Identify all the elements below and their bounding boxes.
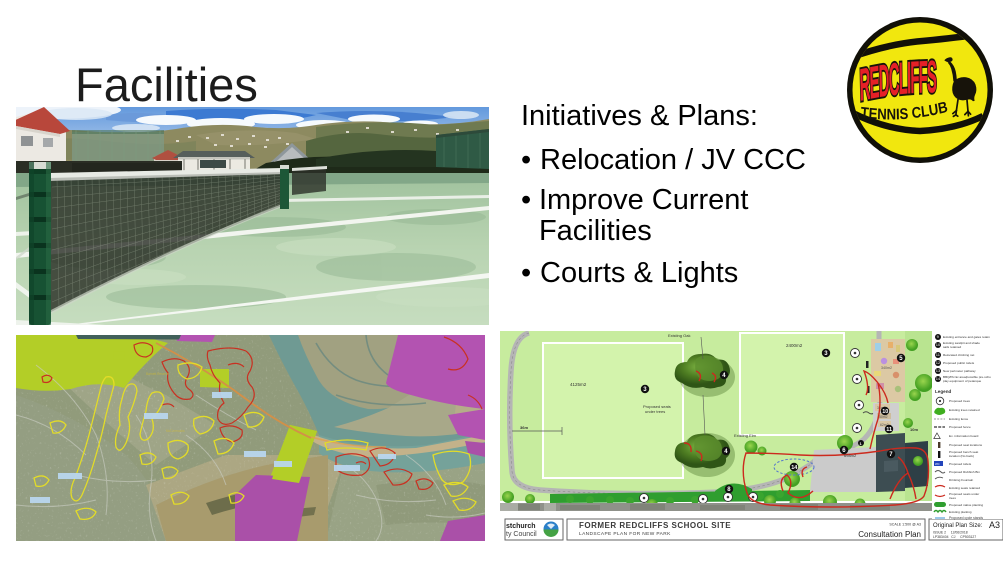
svg-text:REDCLIFFS: REDCLIFFS xyxy=(859,52,937,112)
svg-text:LP383404 CJ CP503127: LP383404 CJ CP503127 xyxy=(933,535,976,539)
svg-text:Ex. information board: Ex. information board xyxy=(949,434,979,438)
svg-text:Proposed trees: Proposed trees xyxy=(949,399,970,403)
svg-text:Existing trees retained: Existing trees retained xyxy=(949,408,980,412)
svg-text:SCALE 1:500 @ A3: SCALE 1:500 @ A3 xyxy=(889,523,921,527)
svg-text:Legend: Legend xyxy=(935,389,952,394)
svg-text:McCormacks: McCormacks xyxy=(166,429,185,433)
svg-text:WC: WC xyxy=(935,462,940,466)
svg-text:LANDSCAPE PLAN FOR NEW PARK: LANDSCAPE PLAN FOR NEW PARK xyxy=(579,531,671,537)
svg-text:Proposed Rubbish Bin: Proposed Rubbish Bin xyxy=(949,470,980,474)
svg-text:Proposed toilets: Proposed toilets xyxy=(949,462,972,466)
svg-text:FORMER REDCLIFFS SCHOOL SITE: FORMER REDCLIFFS SCHOOL SITE xyxy=(579,521,731,530)
svg-text:Proposed cycle stands: Proposed cycle stands xyxy=(949,516,983,520)
svg-text:340m2: 340m2 xyxy=(881,366,892,370)
svg-text:play equipment of petanque: play equipment of petanque xyxy=(943,379,981,383)
svg-text:trees: trees xyxy=(949,496,956,500)
svg-text:14: 14 xyxy=(936,376,941,381)
svg-text:Existing Elm: Existing Elm xyxy=(734,433,757,438)
svg-text:Relocated climbing net: Relocated climbing net xyxy=(943,353,974,357)
svg-text:14: 14 xyxy=(791,465,798,471)
svg-text:Proposed public toilets: Proposed public toilets xyxy=(943,361,975,365)
svg-text:Proposed native planting: Proposed native planting xyxy=(949,503,983,507)
svg-text:Drinking Fountain: Drinking Fountain xyxy=(949,478,974,482)
svg-text:11: 11 xyxy=(886,427,892,433)
svg-text:10: 10 xyxy=(882,409,888,415)
svg-text:36m: 36m xyxy=(520,425,528,430)
svg-text:Proposed seat locations: Proposed seat locations xyxy=(949,443,982,447)
svg-text:ty Council: ty Council xyxy=(506,531,537,538)
svg-text:Existing entrance and gates re: Existing entrance and gates retain xyxy=(943,335,990,339)
svg-text:13: 13 xyxy=(936,368,941,373)
svg-text:Existing seats retained: Existing seats retained xyxy=(949,486,980,490)
svg-text:New perimeter pathway: New perimeter pathway xyxy=(943,369,976,373)
svg-text:A3: A3 xyxy=(989,520,1000,530)
svg-text:Existing fence: Existing fence xyxy=(949,417,969,421)
svg-text:Existing planting: Existing planting xyxy=(949,510,972,514)
svg-text:Original Plan Size:: Original Plan Size: xyxy=(933,523,983,529)
svg-text:698m2: 698m2 xyxy=(844,453,857,458)
svg-text:Consultation Plan: Consultation Plan xyxy=(858,530,921,539)
svg-text:under trees: under trees xyxy=(645,409,665,414)
svg-text:sails retained: sails retained xyxy=(943,345,962,349)
svg-text:Proposed fence: Proposed fence xyxy=(949,425,971,429)
svg-text:Existing Oak: Existing Oak xyxy=(668,333,690,338)
svg-text:10: 10 xyxy=(936,342,941,347)
svg-text:Barnett Reserve: Barnett Reserve xyxy=(146,372,169,376)
svg-text:ISSUE 2 12/06/2018: ISSUE 2 12/06/2018 xyxy=(933,531,968,535)
svg-text:10m: 10m xyxy=(910,427,918,432)
svg-text:stchurch: stchurch xyxy=(506,523,536,530)
svg-text:location (No back): location (No back) xyxy=(949,454,974,458)
svg-text:50m2: 50m2 xyxy=(879,415,888,419)
svg-text:4125m2: 4125m2 xyxy=(570,382,587,387)
svg-text:12: 12 xyxy=(936,360,941,365)
svg-text:2400m2: 2400m2 xyxy=(786,343,803,348)
